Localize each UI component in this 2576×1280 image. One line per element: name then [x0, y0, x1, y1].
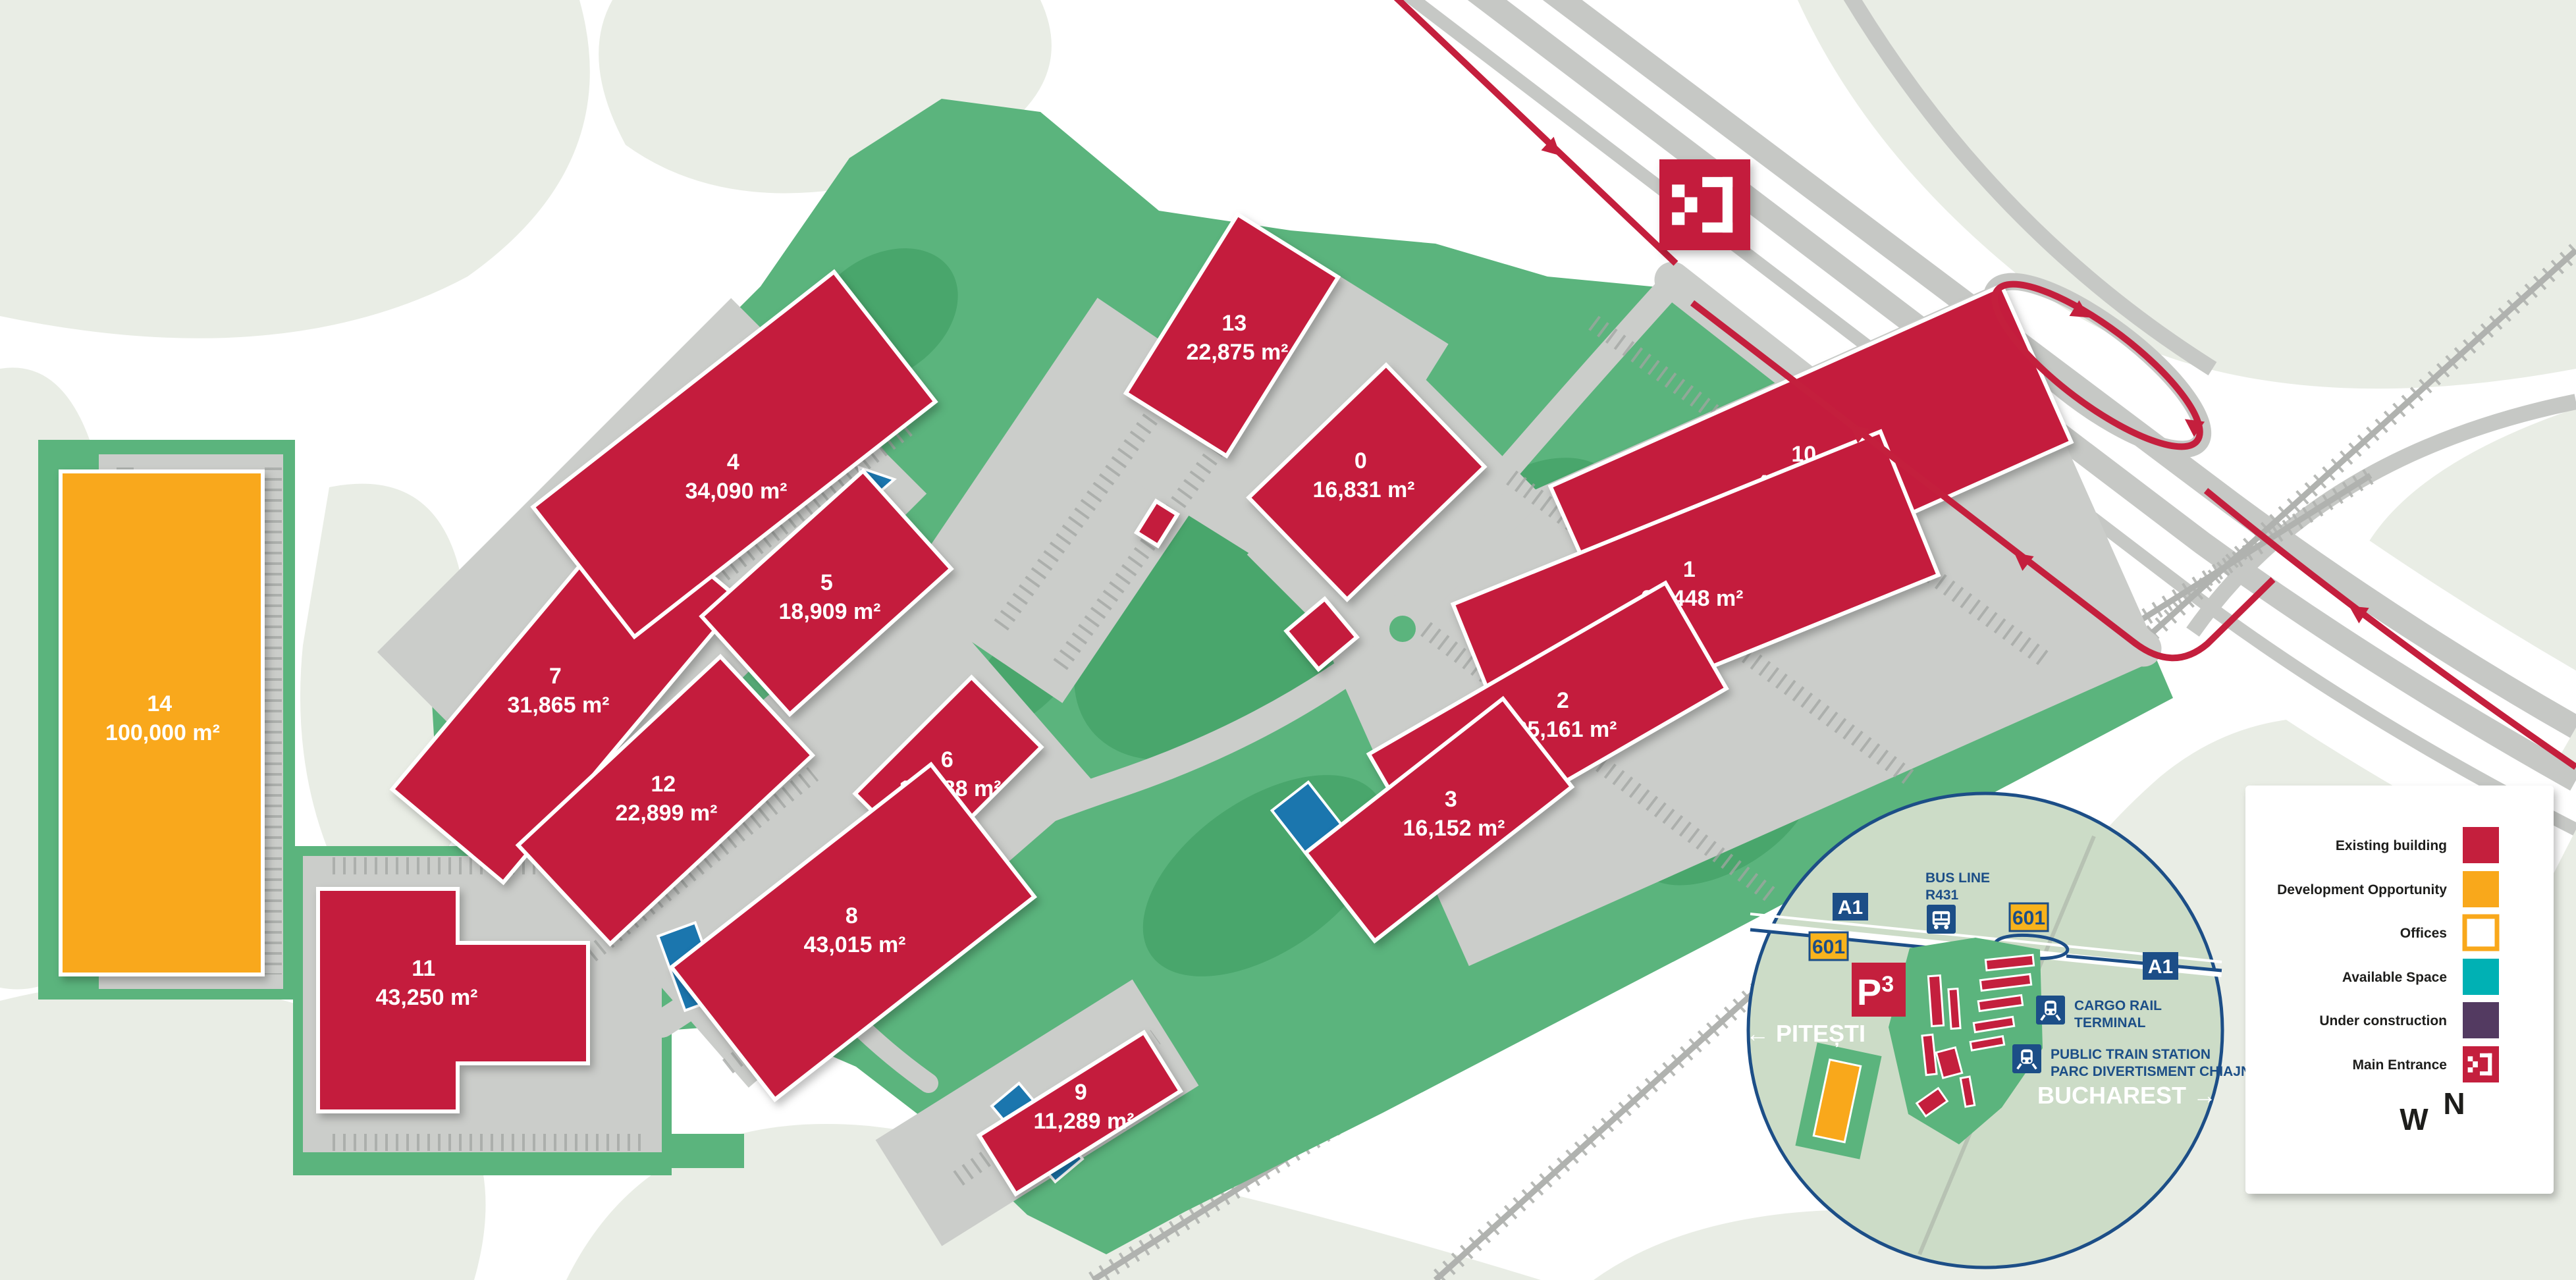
masterplan-page: 14 100,000 m² 11 43,250 m² 7 31,865 m² 4…	[0, 0, 2576, 1280]
legend-label: Under construction	[2319, 1013, 2447, 1028]
bus-line-number: R431	[1925, 888, 1959, 903]
development-swatch	[2463, 871, 2499, 907]
compass-west: W	[2400, 1102, 2428, 1136]
a1-badge-label: A1	[2148, 956, 2173, 978]
terrain-blob	[0, 0, 590, 338]
main-entrance-icon	[1659, 159, 1750, 250]
bus-line-label: BUS LINE	[1925, 870, 1990, 886]
badge-601-label: 601	[1812, 936, 1845, 958]
train-station-label2: PARC DIVERTISMENT CHIAJNA	[2051, 1064, 2261, 1079]
masterplan-map: 14 100,000 m² 11 43,250 m² 7 31,865 m² 4…	[0, 0, 2576, 1280]
cargo-rail-label2: TERMINAL	[2074, 1015, 2146, 1030]
inset-badge-a1-east: A1	[2143, 952, 2178, 980]
legend-label: Existing building	[2336, 838, 2447, 853]
available-swatch	[2463, 959, 2499, 995]
bus-icon	[1927, 905, 1956, 934]
roundabout-island	[1389, 616, 1416, 642]
bucharest-label: BUCHAREST →	[2037, 1082, 2216, 1109]
entrance-swatch-icon	[2463, 1046, 2499, 1082]
legend-label: Development Opportunity	[2277, 882, 2447, 897]
inset-badge-a1-west: A1	[1833, 893, 1868, 920]
legend-label: Main Entrance	[2352, 1057, 2447, 1073]
offices-swatch	[2465, 917, 2497, 949]
legend: Existing building Development Opportunit…	[2245, 786, 2554, 1194]
badge-601-label: 601	[2012, 907, 2045, 929]
cargo-rail-label: CARGO RAIL	[2074, 998, 2162, 1013]
inset-p3-logo: P3	[1852, 963, 1906, 1017]
legend-label: Available Space	[2342, 970, 2447, 985]
train-station-icon	[2012, 1044, 2041, 1073]
train-station-label: PUBLIC TRAIN STATION	[2051, 1047, 2211, 1062]
existing-swatch	[2463, 827, 2499, 863]
construction-swatch	[2463, 1002, 2499, 1038]
a1-badge-label: A1	[1838, 897, 1863, 919]
legend-label: Offices	[2400, 926, 2447, 941]
building-14: 14 100,000 m²	[61, 471, 263, 974]
cargo-rail-icon	[2036, 996, 2065, 1025]
inset-badge-601-east: 601	[2010, 903, 2048, 931]
inset-badge-601-west: 601	[1810, 932, 1848, 960]
pitesti-label: ← PITEȘTI	[1746, 1020, 1865, 1047]
inset-building	[1948, 989, 1960, 1029]
compass-north: N	[2443, 1086, 2465, 1121]
inset-building	[1928, 975, 1943, 1026]
